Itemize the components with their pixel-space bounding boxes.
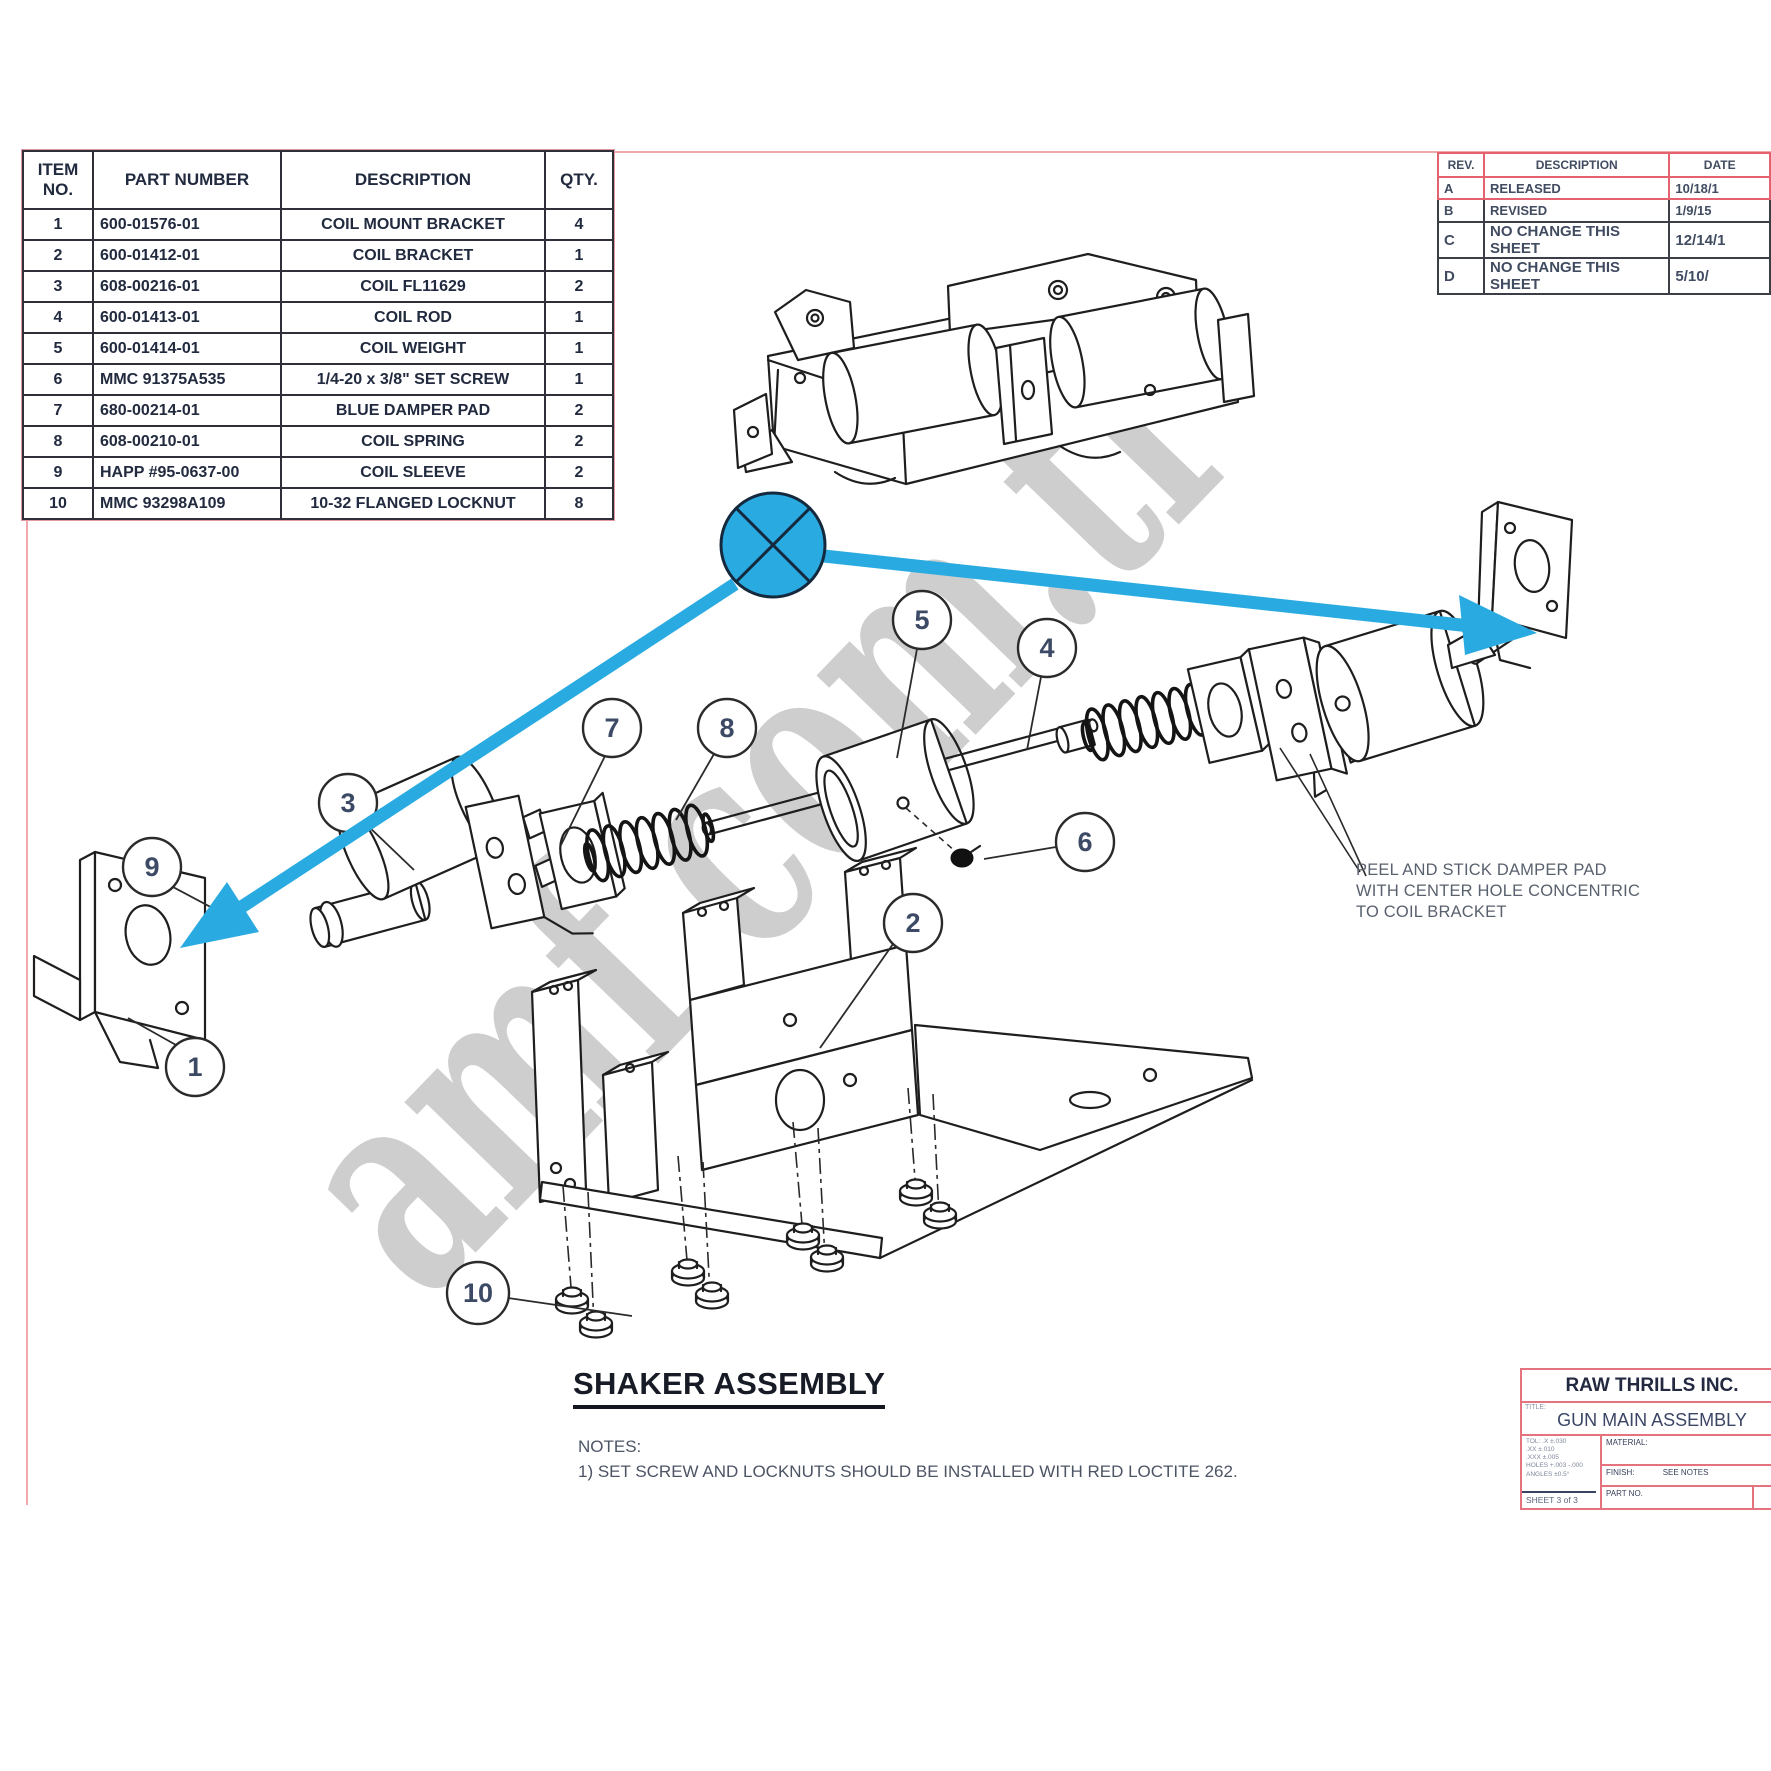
parts-cell-qty: 2	[545, 395, 613, 426]
parts-cell-part: 608-00216-01	[93, 271, 281, 302]
revision-table-row: DNO CHANGE THIS SHEET5/10/	[1438, 258, 1770, 294]
parts-cell-part: HAPP #95-0637-00	[93, 457, 281, 488]
revision-table-row: ARELEASED10/18/1	[1438, 177, 1770, 199]
title-row: TITLE: GUN MAIN ASSEMBLY	[1522, 1403, 1771, 1436]
parts-cell-desc: COIL MOUNT BRACKET	[281, 209, 545, 240]
tolerance-block: TOL: .X ±.030.XX ±.010.XXX ±.005HOLES +.…	[1522, 1436, 1602, 1508]
parts-table-row: 3608-00216-01COIL FL116292	[23, 271, 613, 302]
parts-cell-part: 608-00210-01	[93, 426, 281, 457]
parts-cell-qty: 2	[545, 457, 613, 488]
part-no-label: PART NO.	[1606, 1489, 1643, 1498]
parts-cell-item: 5	[23, 333, 93, 364]
revision-cell-desc: RELEASED	[1484, 177, 1669, 199]
parts-cell-part: 600-01412-01	[93, 240, 281, 271]
revision-cell-desc: NO CHANGE THIS SHEET	[1484, 258, 1669, 294]
parts-cell-part: 680-00214-01	[93, 395, 281, 426]
revision-cell-rev: C	[1438, 222, 1484, 258]
drawing-title: SHAKER ASSEMBLY	[573, 1366, 885, 1409]
annotation-line: WITH CENTER HOLE CONCENTRIC	[1356, 881, 1640, 902]
annotation-line: TO COIL BRACKET	[1356, 902, 1640, 923]
annotation-line: PEEL AND STICK DAMPER PAD	[1356, 860, 1640, 881]
assembly-title: GUN MAIN ASSEMBLY	[1522, 1403, 1771, 1437]
parts-cell-item: 3	[23, 271, 93, 302]
note-line: 1) SET SCREW AND LOCKNUTS SHOULD BE INST…	[578, 1461, 1238, 1484]
parts-header-cell: PART NUMBER	[93, 151, 281, 209]
notes-label: NOTES:	[578, 1436, 1238, 1459]
title-block: RAW THRILLS INC. TITLE: GUN MAIN ASSEMBL…	[1520, 1368, 1771, 1510]
parts-cell-part: 600-01576-01	[93, 209, 281, 240]
parts-cell-desc: COIL WEIGHT	[281, 333, 545, 364]
parts-cell-qty: 1	[545, 364, 613, 395]
drawing-sheet: { "parts_table": { "headers": ["ITEM\nNO…	[0, 0, 1771, 1771]
parts-table-row: 9HAPP #95-0637-00COIL SLEEVE2	[23, 457, 613, 488]
callout-number: 6	[1077, 827, 1092, 857]
parts-cell-desc: COIL SPRING	[281, 426, 545, 457]
parts-cell-desc: COIL BRACKET	[281, 240, 545, 271]
parts-cell-desc: COIL ROD	[281, 302, 545, 333]
finish-value: SEE NOTES	[1663, 1468, 1709, 1477]
revision-cell-rev: D	[1438, 258, 1484, 294]
finish-label: FINISH:	[1606, 1468, 1634, 1477]
callout-number: 5	[914, 605, 929, 635]
parts-table-row: 8608-00210-01COIL SPRING2	[23, 426, 613, 457]
revision-table-row: CNO CHANGE THIS SHEET12/14/1	[1438, 222, 1770, 258]
parts-table-row: 4600-01413-01COIL ROD1	[23, 302, 613, 333]
parts-table-row: 2600-01412-01COIL BRACKET1	[23, 240, 613, 271]
tolerance-line: TOL: .X ±.030	[1526, 1438, 1600, 1446]
parts-table-row: 10MMC 93298A10910-32 FLANGED LOCKNUT8	[23, 488, 613, 519]
revision-cell-desc: NO CHANGE THIS SHEET	[1484, 222, 1669, 258]
callout-number: 8	[719, 713, 734, 743]
parts-table-row: 7680-00214-01BLUE DAMPER PAD2	[23, 395, 613, 426]
callout-number: 3	[340, 788, 355, 818]
parts-cell-desc: 1/4-20 x 3/8" SET SCREW	[281, 364, 545, 395]
parts-table-header: ITEM NO.PART NUMBERDESCRIPTIONQTY.	[23, 151, 613, 209]
parts-cell-qty: 2	[545, 271, 613, 302]
parts-table-row: 5600-01414-01COIL WEIGHT1	[23, 333, 613, 364]
revision-table: REV.DESCRIPTIONDATE ARELEASED10/18/1BREV…	[1437, 152, 1771, 295]
parts-table: ITEM NO.PART NUMBERDESCRIPTIONQTY. 1600-…	[21, 149, 615, 521]
revision-table-header: REV.DESCRIPTIONDATE	[1438, 153, 1770, 177]
parts-cell-part: MMC 91375A535	[93, 364, 281, 395]
damper-pad-annotation: PEEL AND STICK DAMPER PADWITH CENTER HOL…	[1356, 860, 1640, 922]
tolerance-line: ANGLES ±0.5°	[1526, 1471, 1600, 1479]
notes-block: NOTES: 1) SET SCREW AND LOCKNUTS SHOULD …	[578, 1436, 1238, 1484]
tolerance-line: HOLES +.003 -.000	[1526, 1462, 1600, 1470]
parts-cell-qty: 2	[545, 426, 613, 457]
parts-cell-qty: 8	[545, 488, 613, 519]
parts-cell-item: 7	[23, 395, 93, 426]
revision-header-cell: REV.	[1438, 153, 1484, 177]
parts-cell-item: 8	[23, 426, 93, 457]
revision-cell-rev: B	[1438, 199, 1484, 222]
callout-number: 9	[144, 852, 159, 882]
material-cell: MATERIAL:	[1602, 1436, 1771, 1466]
parts-cell-item: 2	[23, 240, 93, 271]
parts-header-cell: ITEM NO.	[23, 151, 93, 209]
title-label: TITLE:	[1525, 1404, 1546, 1411]
parts-cell-part: 600-01414-01	[93, 333, 281, 364]
parts-table-row: 1600-01576-01COIL MOUNT BRACKET4	[23, 209, 613, 240]
callout-number: 4	[1039, 633, 1054, 663]
parts-cell-part: MMC 93298A109	[93, 488, 281, 519]
callout-number: 2	[905, 908, 920, 938]
parts-table-row: 6MMC 91375A5351/4-20 x 3/8" SET SCREW1	[23, 364, 613, 395]
revision-table-row: BREVISED1/9/15	[1438, 199, 1770, 222]
parts-cell-item: 1	[23, 209, 93, 240]
revision-cell-date: 10/18/1	[1669, 177, 1770, 199]
tolerance-line: .XX ±.010	[1526, 1446, 1600, 1454]
parts-cell-item: 6	[23, 364, 93, 395]
callout-number: 1	[187, 1052, 202, 1082]
revision-header-cell: DESCRIPTION	[1484, 153, 1669, 177]
parts-cell-item: 4	[23, 302, 93, 333]
parts-cell-desc: COIL FL11629	[281, 271, 545, 302]
parts-cell-item: 10	[23, 488, 93, 519]
part-no-cell: PART NO.	[1602, 1487, 1771, 1508]
parts-cell-item: 9	[23, 457, 93, 488]
callout-number: 10	[463, 1278, 493, 1308]
revision-cell-rev: A	[1438, 177, 1484, 199]
parts-cell-desc: 10-32 FLANGED LOCKNUT	[281, 488, 545, 519]
revision-cell-desc: REVISED	[1484, 199, 1669, 222]
parts-cell-desc: BLUE DAMPER PAD	[281, 395, 545, 426]
sheet-number: SHEET 3 of 3	[1522, 1491, 1596, 1508]
parts-header-cell: QTY.	[545, 151, 613, 209]
revision-header-cell: DATE	[1669, 153, 1770, 177]
parts-cell-qty: 1	[545, 240, 613, 271]
parts-cell-qty: 1	[545, 333, 613, 364]
parts-cell-qty: 1	[545, 302, 613, 333]
parts-cell-part: 600-01413-01	[93, 302, 281, 333]
revision-cell-date: 12/14/1	[1669, 222, 1770, 258]
parts-cell-qty: 4	[545, 209, 613, 240]
parts-header-cell: DESCRIPTION	[281, 151, 545, 209]
revision-cell-date: 1/9/15	[1669, 199, 1770, 222]
tolerance-line: .XXX ±.005	[1526, 1454, 1600, 1462]
revision-cell-date: 5/10/	[1669, 258, 1770, 294]
finish-cell: FINISH: SEE NOTES	[1602, 1466, 1771, 1487]
callout-number: 7	[604, 713, 619, 743]
company-name: RAW THRILLS INC.	[1522, 1370, 1771, 1403]
parts-cell-desc: COIL SLEEVE	[281, 457, 545, 488]
